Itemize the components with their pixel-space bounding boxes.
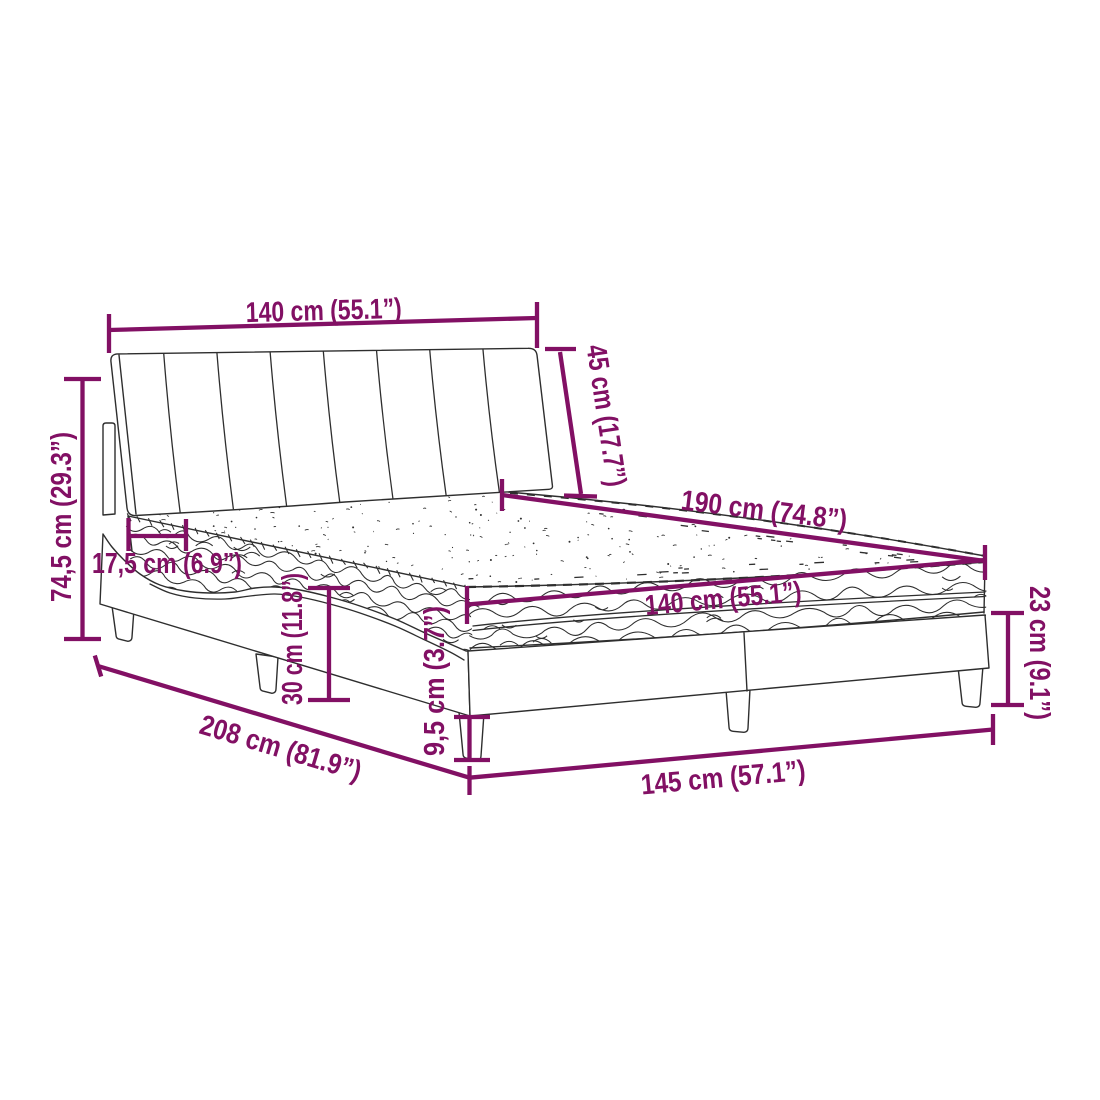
svg-text:30 cm (11.8”): 30 cm (11.8”) bbox=[277, 573, 309, 705]
svg-text:9,5 cm (3.7”): 9,5 cm (3.7”) bbox=[419, 606, 451, 756]
svg-text:74,5 cm (29.3”): 74,5 cm (29.3”) bbox=[46, 432, 78, 602]
svg-text:140 cm (55.1”): 140 cm (55.1”) bbox=[245, 293, 402, 329]
svg-text:23 cm (9.1”): 23 cm (9.1”) bbox=[1023, 586, 1055, 720]
svg-text:17,5 cm (6.9”): 17,5 cm (6.9”) bbox=[92, 548, 242, 580]
